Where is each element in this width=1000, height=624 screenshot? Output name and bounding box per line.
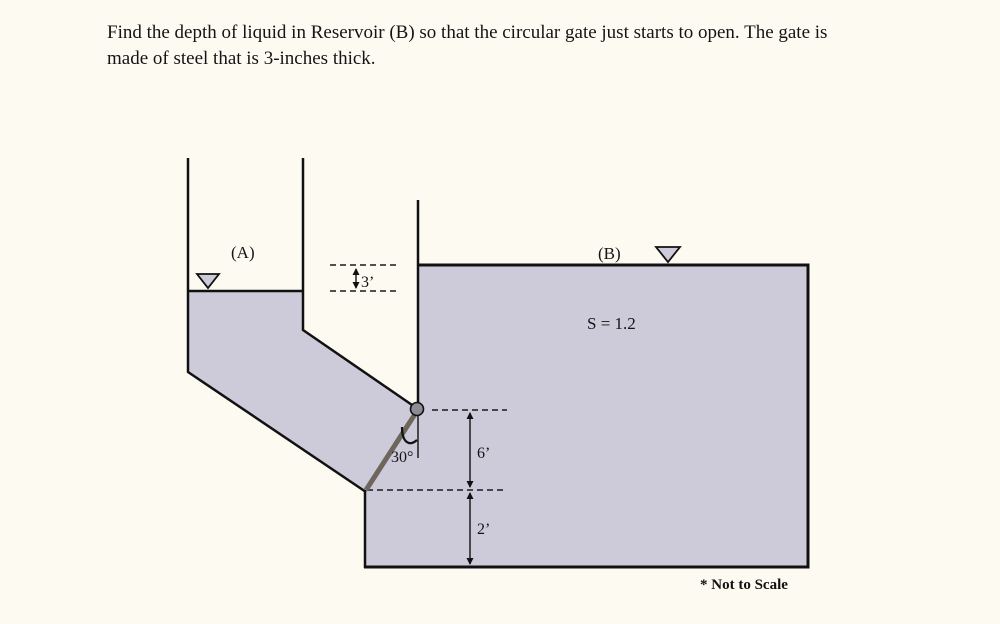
dim-label-3ft: 3’	[361, 274, 374, 291]
water-surface-symbol-b	[656, 247, 680, 262]
reservoir-b-liquid	[365, 265, 808, 567]
gate-angle-label: 30°	[391, 449, 413, 466]
reservoir-b-label: (B)	[598, 244, 621, 263]
dim-label-2ft: 2’	[477, 521, 490, 538]
reservoir-a-label: (A)	[231, 243, 255, 262]
water-surface-symbol-a	[197, 274, 219, 288]
specific-gravity-label: S = 1.2	[587, 314, 636, 333]
not-to-scale-note: * Not to Scale	[700, 577, 788, 593]
gate-hinge	[411, 403, 424, 416]
reservoir-diagram: (A) (B) S = 1.2 3’ 6’ 2’ 30° * Not to Sc…	[0, 0, 1000, 624]
page: Find the depth of liquid in Reservoir (B…	[0, 0, 1000, 624]
dim-label-6ft: 6’	[477, 445, 490, 462]
